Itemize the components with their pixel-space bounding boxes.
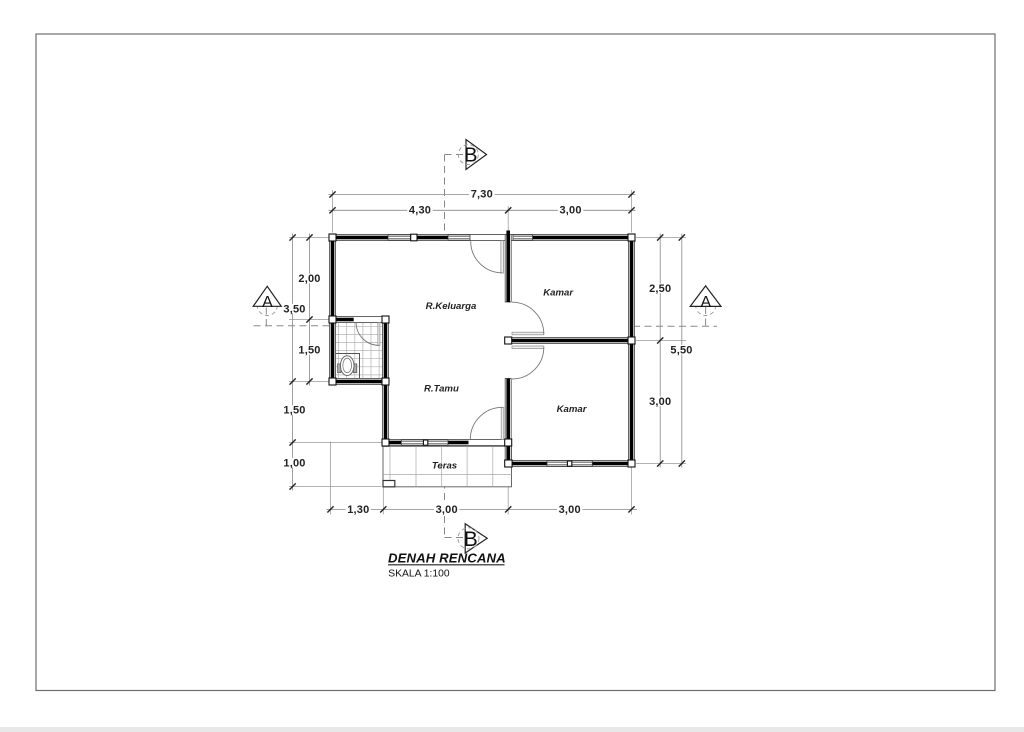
svg-text:Teras: Teras <box>432 461 457 472</box>
svg-text:R.Keluarga: R.Keluarga <box>426 301 477 312</box>
svg-text:2,50: 2,50 <box>649 283 671 295</box>
svg-text:A: A <box>700 294 711 311</box>
svg-text:3,50: 3,50 <box>283 303 305 315</box>
svg-text:B: B <box>464 528 478 551</box>
svg-text:3,00: 3,00 <box>559 205 581 217</box>
svg-text:1,50: 1,50 <box>298 345 320 357</box>
svg-text:3,00: 3,00 <box>649 396 671 408</box>
svg-text:3,00: 3,00 <box>436 504 458 516</box>
svg-text:Kamar: Kamar <box>543 287 574 298</box>
svg-text:5,50: 5,50 <box>670 344 692 356</box>
svg-text:7,30: 7,30 <box>471 189 493 201</box>
svg-text:DENAH RENCANA: DENAH RENCANA <box>388 551 506 566</box>
svg-text:R.Tamu: R.Tamu <box>424 384 459 395</box>
svg-text:3,00: 3,00 <box>559 504 581 516</box>
svg-text:1,30: 1,30 <box>347 504 369 516</box>
svg-text:4,30: 4,30 <box>409 205 431 217</box>
svg-text:1,50: 1,50 <box>283 405 305 417</box>
svg-text:SKALA 1:100: SKALA 1:100 <box>388 568 450 579</box>
svg-text:Kamar: Kamar <box>557 404 588 415</box>
svg-text:1,00: 1,00 <box>283 457 305 469</box>
svg-text:B: B <box>464 145 477 167</box>
svg-text:A: A <box>262 294 273 311</box>
svg-text:2,00: 2,00 <box>298 273 320 285</box>
